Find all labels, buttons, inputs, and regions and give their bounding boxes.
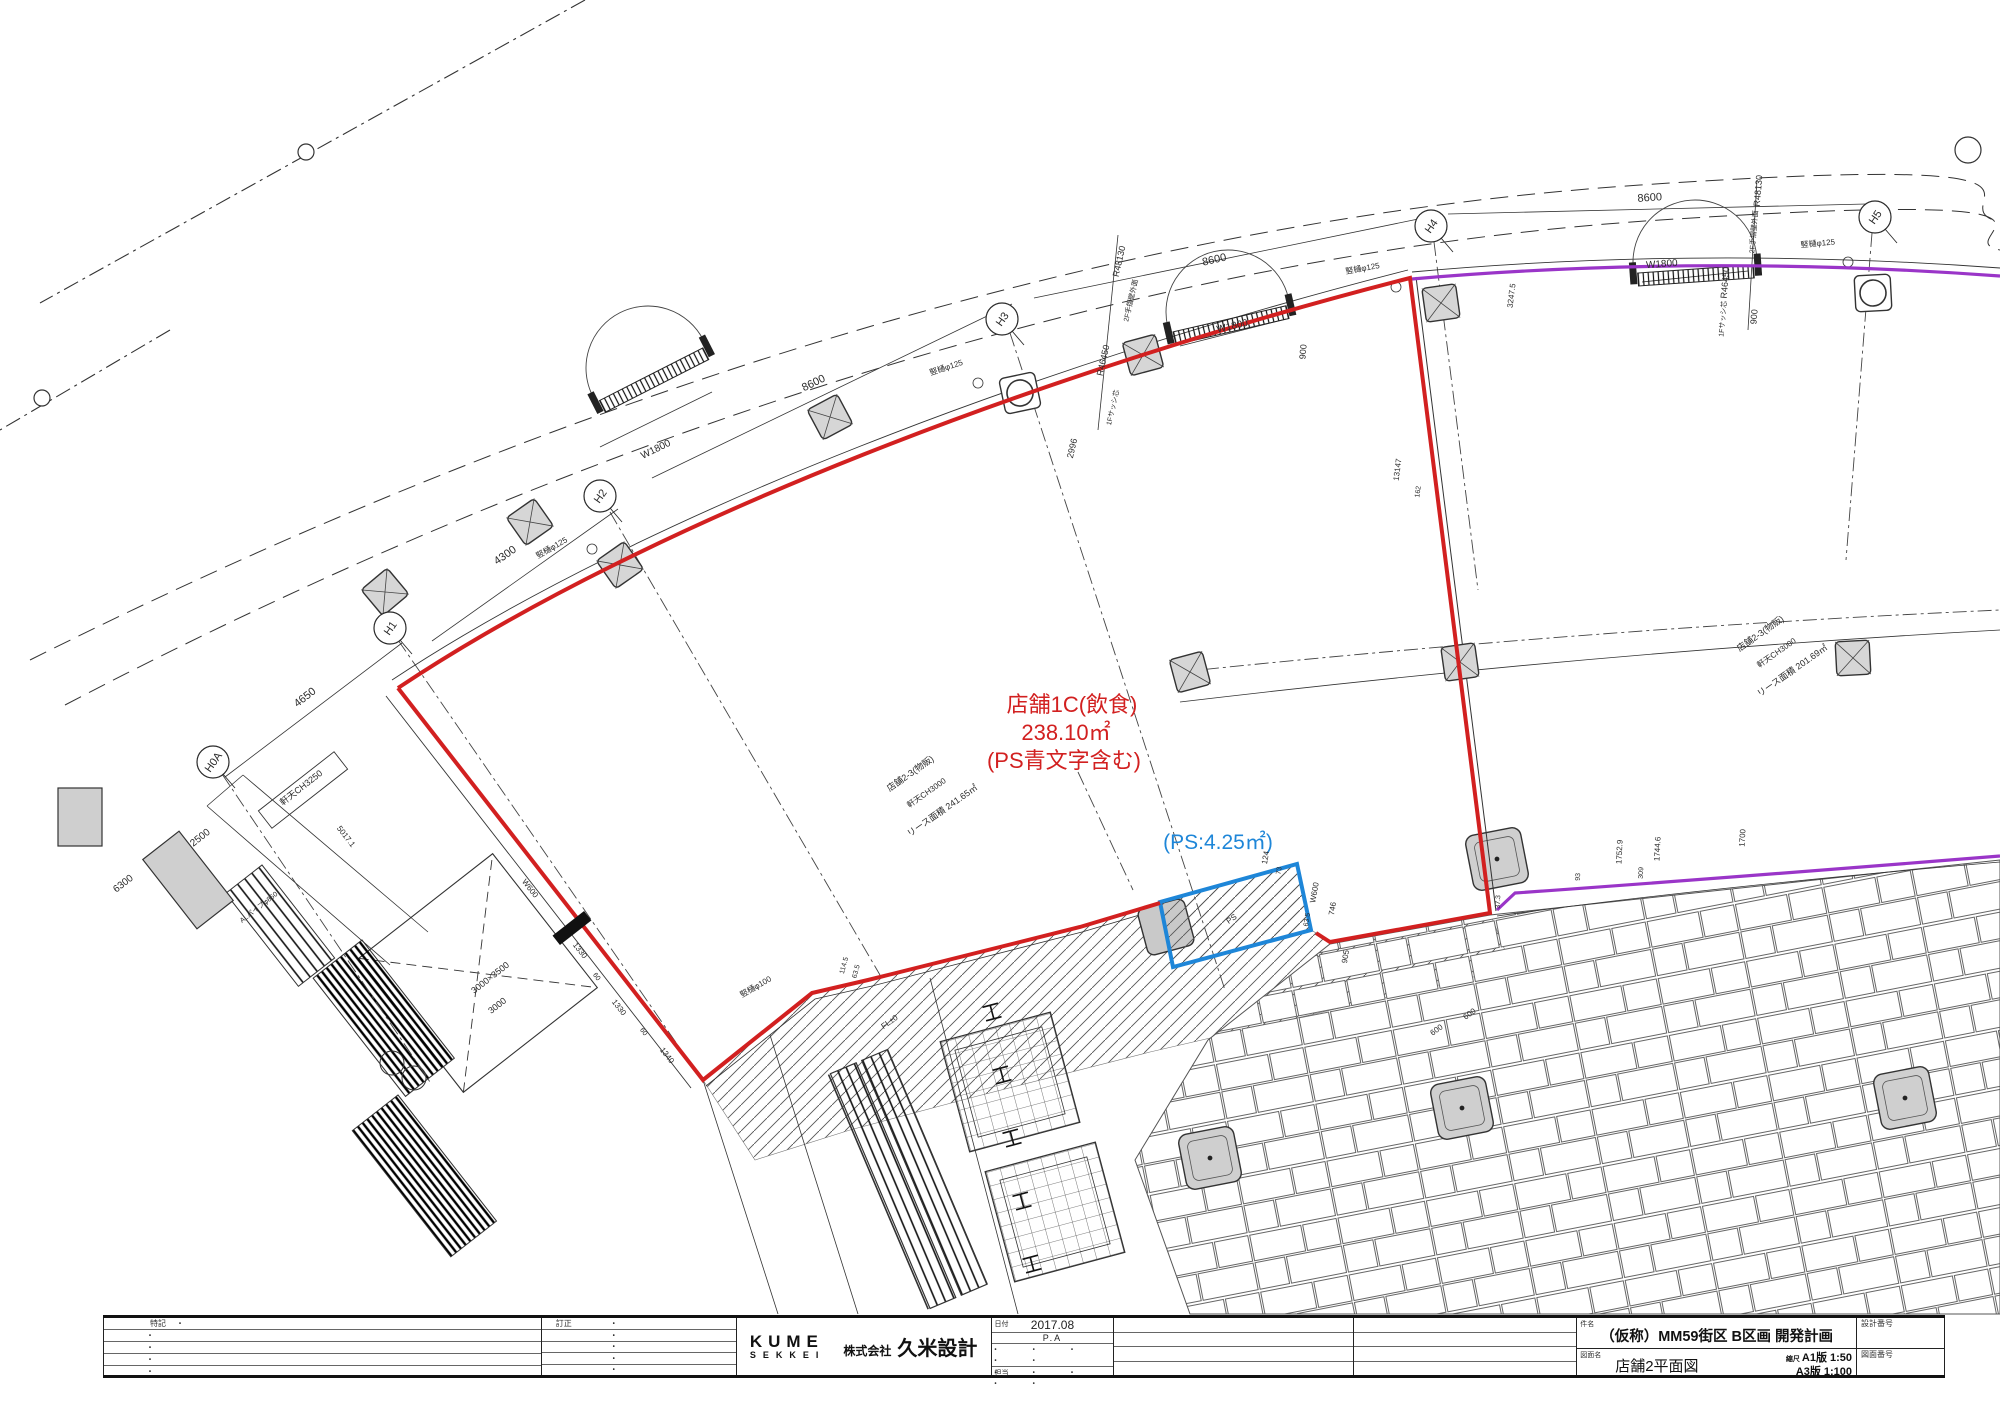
dim-label: 2996 — [1065, 437, 1079, 459]
company-name: 久米設計 — [897, 1338, 977, 1360]
empty-revision-grid-1 — [1114, 1318, 1354, 1375]
title-block-notes-cell: 特記・ ・ ・ ・ ・ — [103, 1318, 542, 1375]
grid-bubble-H2: H2 — [584, 480, 622, 522]
dim-label: 73 — [1275, 866, 1283, 875]
dim-label: 37.3 — [1495, 895, 1503, 909]
dim-label: 13147 — [1392, 458, 1404, 482]
dim-label: 竪樋φ125 — [928, 357, 964, 377]
drawing-name: 店舗2平面図 — [1615, 1355, 1698, 1376]
site-plan-svg: H0AH1H2H3H4H5 店舗1C(飲食)238.10㎡(PS青文字含む)(P… — [0, 0, 2000, 1414]
drawing-number-label: 図面番号 — [1861, 1350, 1893, 1359]
date-label: 日付 — [995, 1319, 1009, 1329]
date-cell: 日付2017.08 P.A ・ ・ ・ ・ ・ 担当・ ・ ・ ・ ・ — [992, 1318, 1115, 1375]
dim-label: W600 — [1308, 881, 1321, 904]
date-value: 2017.08 — [1031, 1318, 1074, 1332]
dim-label: リース面積 241.65㎡ — [905, 782, 980, 839]
dim-label: 2F手摺壁外面 — [1121, 278, 1139, 322]
store-1c-annotation: 店舗1C(飲食) — [1007, 692, 1138, 717]
dim-label: R48130 — [1752, 175, 1765, 207]
dim-label: 竪樋φ125 — [1345, 260, 1381, 276]
grid-bubble-H3: H3 — [986, 303, 1024, 345]
dim-label: 63.5 — [851, 964, 861, 979]
store-1c-annotation: (PS青文字含む) — [987, 748, 1141, 773]
dim-label: 8600 — [800, 373, 827, 395]
empty-revision-grid-2 — [1354, 1318, 1577, 1375]
dim-label: 1Fサッシ芯 — [1716, 300, 1728, 337]
grid-bubble-H5: H5 — [1859, 201, 1897, 243]
dim-label: 2500 — [188, 827, 213, 850]
scale-a3: A3版 1:100 — [1796, 1366, 1852, 1378]
dim-label: 竪樋φ125 — [1800, 236, 1836, 249]
stair-run-2 — [352, 1095, 496, 1257]
project-label: 件名 — [1580, 1319, 1594, 1329]
store-1c-annotation: 238.10㎡ — [1021, 720, 1110, 745]
logo-word-top: KUME — [750, 1333, 826, 1351]
dim-label: 3000×3500 — [469, 960, 511, 996]
dim-label: 6300 — [111, 873, 136, 896]
project-name: （仮称）MM59街区 B区画 開発計画 — [1600, 1325, 1833, 1346]
notes-label: 特記 — [150, 1318, 166, 1329]
dim-label: 746 — [1327, 901, 1338, 916]
number-cells: 設計番号 図面番号 — [1857, 1318, 1945, 1375]
dim-label: 1330 — [610, 998, 628, 1018]
dim-label: W600 — [520, 877, 540, 899]
drawing-sheet: H0AH1H2H3H4H5 店舗1C(飲食)238.10㎡(PS青文字含む)(P… — [0, 0, 2000, 1414]
dim-label: W1800 — [639, 438, 673, 462]
dim-label: 114.5 — [839, 956, 850, 974]
purple-lease-line — [1412, 266, 2000, 910]
dim-label: 900 — [1297, 344, 1308, 360]
dim-label: 124 — [1260, 850, 1271, 865]
dim-label: R46450 — [1095, 344, 1112, 377]
dim-label: 軒天CH3250 — [278, 768, 324, 807]
dim-label: 4300 — [492, 544, 519, 568]
back-of-house-area — [58, 752, 597, 1257]
scale-label: 縮尺 — [1786, 1356, 1800, 1363]
dim-label: 1744.6 — [1652, 836, 1662, 861]
date-sub: P.A — [1043, 1333, 1062, 1343]
dim-label: 5017.1 — [335, 824, 357, 849]
title-block-revision-cell: 訂正・ ・ ・ ・ ・ — [542, 1318, 737, 1375]
escalator-well — [313, 940, 454, 1096]
road-edge-lines — [30, 174, 2000, 705]
ps-annotation: (PS:4.25㎡) — [1163, 830, 1273, 854]
dim-label: 4650 — [292, 685, 319, 710]
dim-label: 162 — [1414, 485, 1422, 498]
drawing-label: 図面名 — [1580, 1350, 1601, 1360]
dim-label: 8600 — [1637, 191, 1662, 205]
company-prefix: 株式会社 — [843, 1344, 891, 1358]
dim-label: 1752.9 — [1614, 839, 1624, 864]
dim-label: 3000 — [486, 996, 508, 1016]
grid-bubble-H0A: H0A — [197, 746, 235, 788]
project-title-cell: 件名 （仮称）MM59街区 B区画 開発計画 図面名 店舗2平面図 縮尺A1版 … — [1577, 1318, 1857, 1375]
dim-label: 900 — [1748, 309, 1759, 325]
dim-label: R46450 — [1719, 267, 1732, 299]
dim-label: リース面積 201.69㎡ — [1755, 642, 1830, 699]
dim-label: 309 — [1638, 867, 1646, 879]
title-block: 特記・ ・ ・ ・ ・ 訂正・ ・ ・ ・ ・ KUME SEKKEI 株式会社… — [103, 1315, 1945, 1378]
dim-label: 1Fサッシ芯 — [1104, 389, 1121, 426]
dim-label: 93 — [1575, 873, 1582, 881]
dim-label: 60 — [638, 1027, 648, 1038]
dim-label: 1340 — [658, 1046, 676, 1066]
dim-label: 竪樋φ100 — [738, 973, 773, 999]
design-number-label: 設計番号 — [1861, 1319, 1893, 1328]
revision-label: 訂正 — [556, 1318, 572, 1329]
dim-label: 3247.5 — [1506, 282, 1518, 308]
dim-label: 1700 — [1738, 828, 1748, 847]
stair-run — [226, 865, 335, 986]
staff-label: 担当 — [995, 1368, 1009, 1378]
grid-bubble-H1: H1 — [374, 612, 412, 654]
dim-label: W1800 — [1646, 258, 1679, 271]
logo-word-bottom: SEKKEI — [750, 1351, 826, 1360]
scale-a1: A1版 1:50 — [1802, 1352, 1852, 1364]
company-logo: KUME SEKKEI 株式会社久米設計 — [737, 1318, 992, 1375]
property-boundary-lines — [0, 0, 1981, 430]
columns — [361, 274, 1892, 956]
